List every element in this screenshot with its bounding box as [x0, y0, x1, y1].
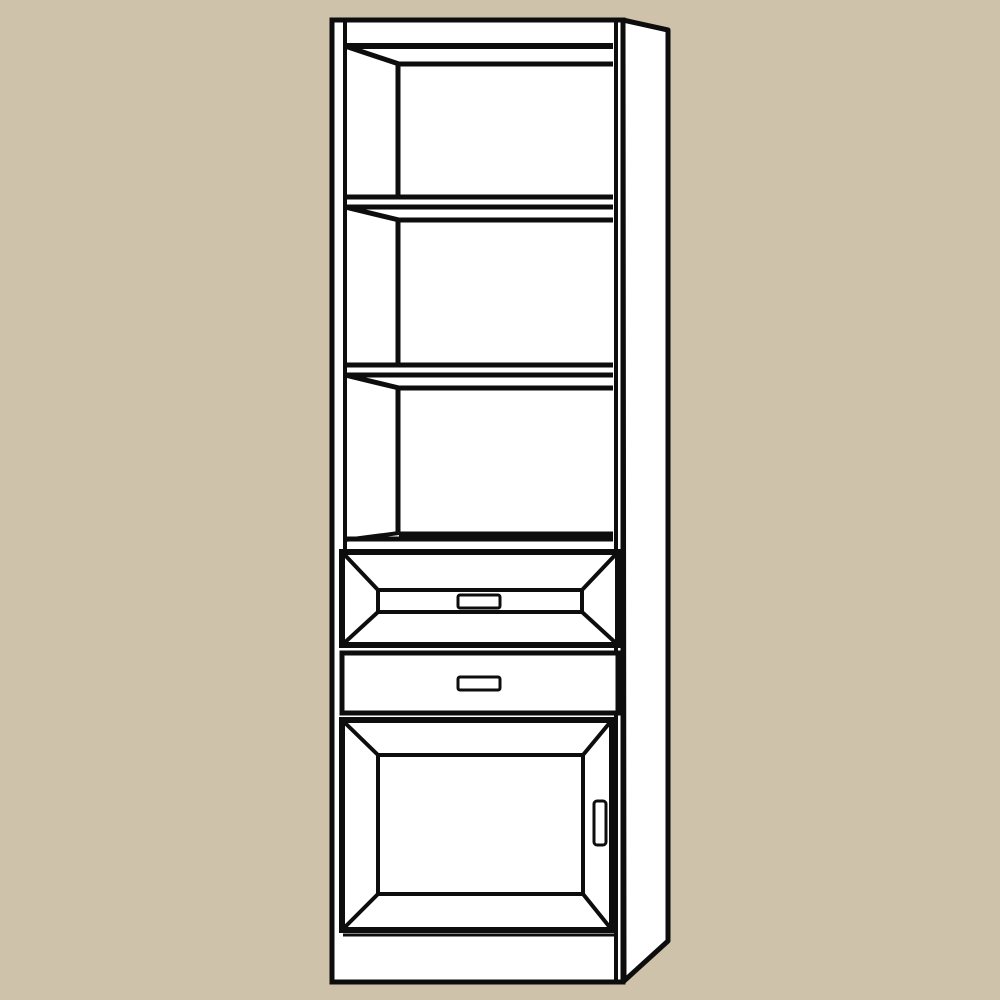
door — [342, 720, 612, 930]
drawer-1-handle — [458, 595, 500, 608]
bottom-shelf — [345, 533, 613, 540]
drawer-2 — [342, 653, 618, 713]
cabinet — [332, 20, 668, 982]
door-handle — [594, 801, 606, 845]
drawer-2-handle — [458, 677, 500, 690]
cabinet-line-drawing — [0, 0, 1000, 1000]
door-inner-panel — [378, 755, 583, 894]
illustration-canvas — [0, 0, 1000, 1000]
drawer-1 — [342, 552, 618, 645]
side-panel — [623, 20, 668, 981]
